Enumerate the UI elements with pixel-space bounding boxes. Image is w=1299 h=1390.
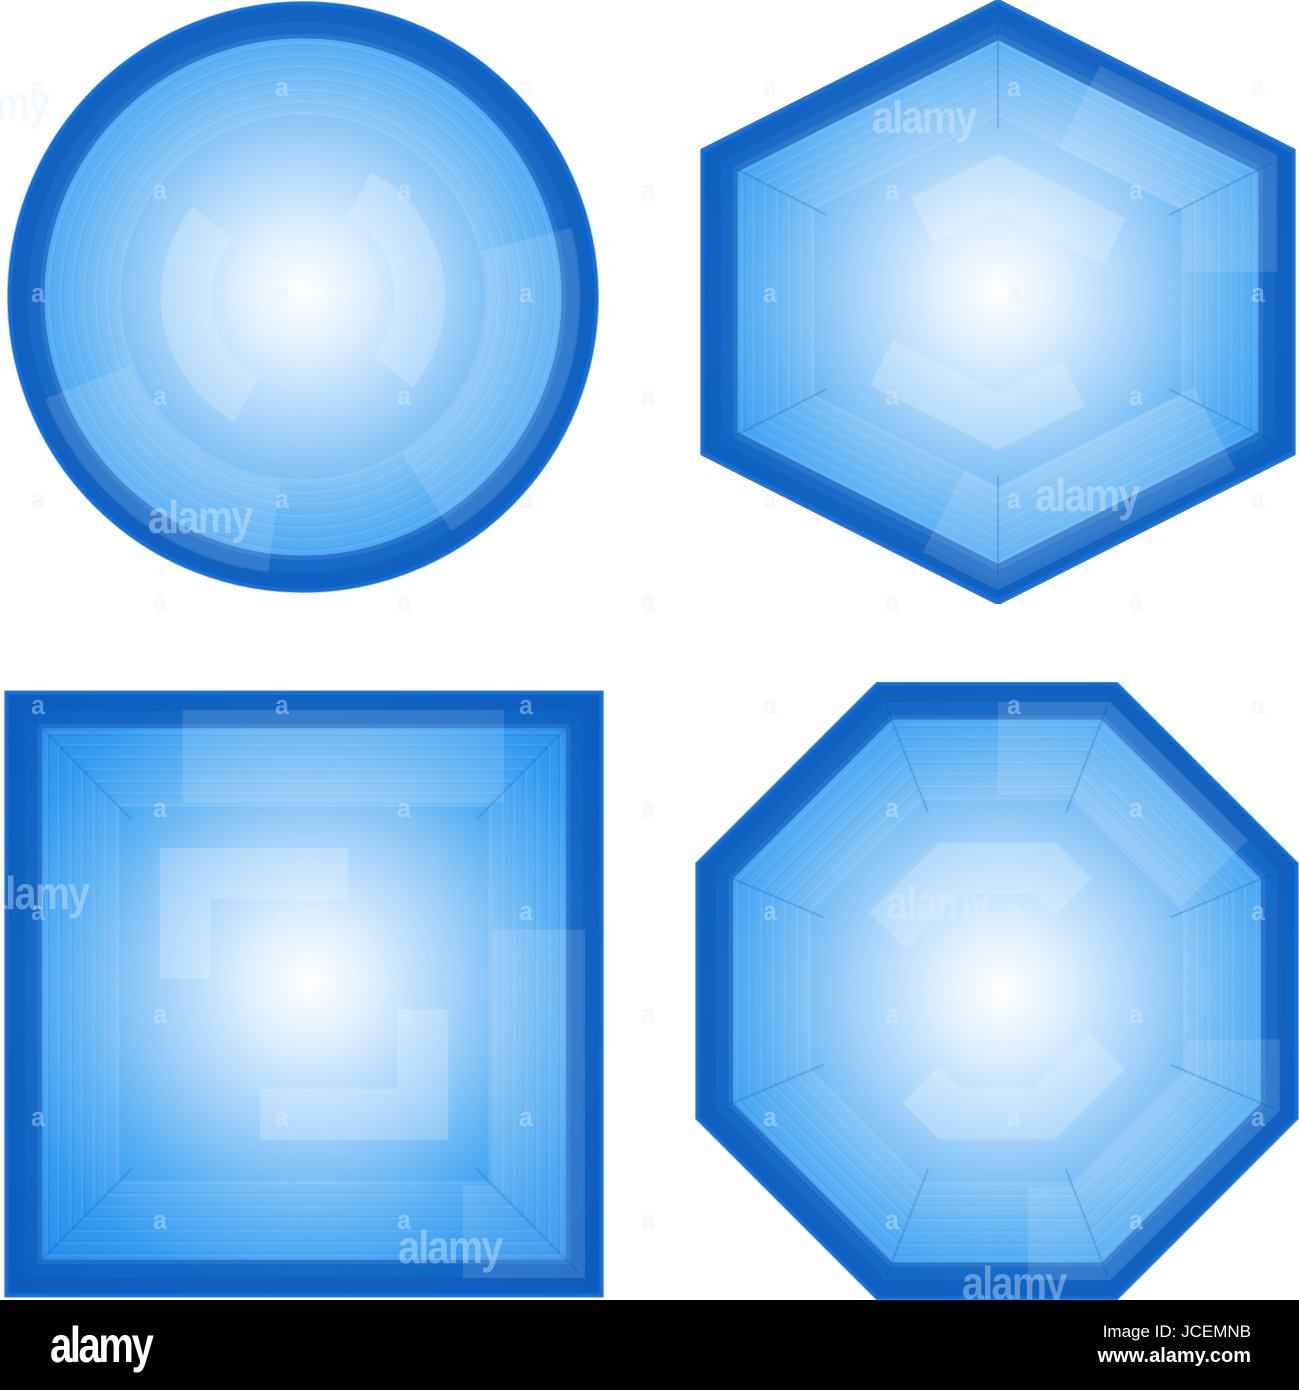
circle-gem bbox=[6, 1, 600, 593]
alamy-banner: alamy Image ID: JCEMNB www.alamy.com bbox=[0, 1300, 1299, 1390]
image-id-text: Image ID: JCEMNB bbox=[1098, 1322, 1251, 1342]
watermark-letter: a bbox=[641, 381, 655, 412]
watermark-letter: a bbox=[641, 999, 655, 1030]
watermark-letter: a bbox=[641, 793, 655, 824]
watermark-letter: a bbox=[641, 1205, 655, 1236]
watermark-letter: a bbox=[641, 587, 655, 618]
alamy-url-text: www.alamy.com bbox=[1098, 1345, 1251, 1368]
hexagon-gem bbox=[700, 0, 1296, 604]
square-gem bbox=[4, 690, 604, 1298]
stock-image-canvas: aaaaaaaaaaaaaaaaaaaaaaaaaaaaaaaaaaaaaaaa… bbox=[0, 0, 1299, 1390]
octagon-gem bbox=[695, 682, 1299, 1300]
banner-right-text: Image ID: JCEMNB www.alamy.com bbox=[1098, 1322, 1251, 1369]
watermark-letter: a bbox=[641, 175, 655, 206]
alamy-logo: alamy bbox=[50, 1320, 151, 1370]
